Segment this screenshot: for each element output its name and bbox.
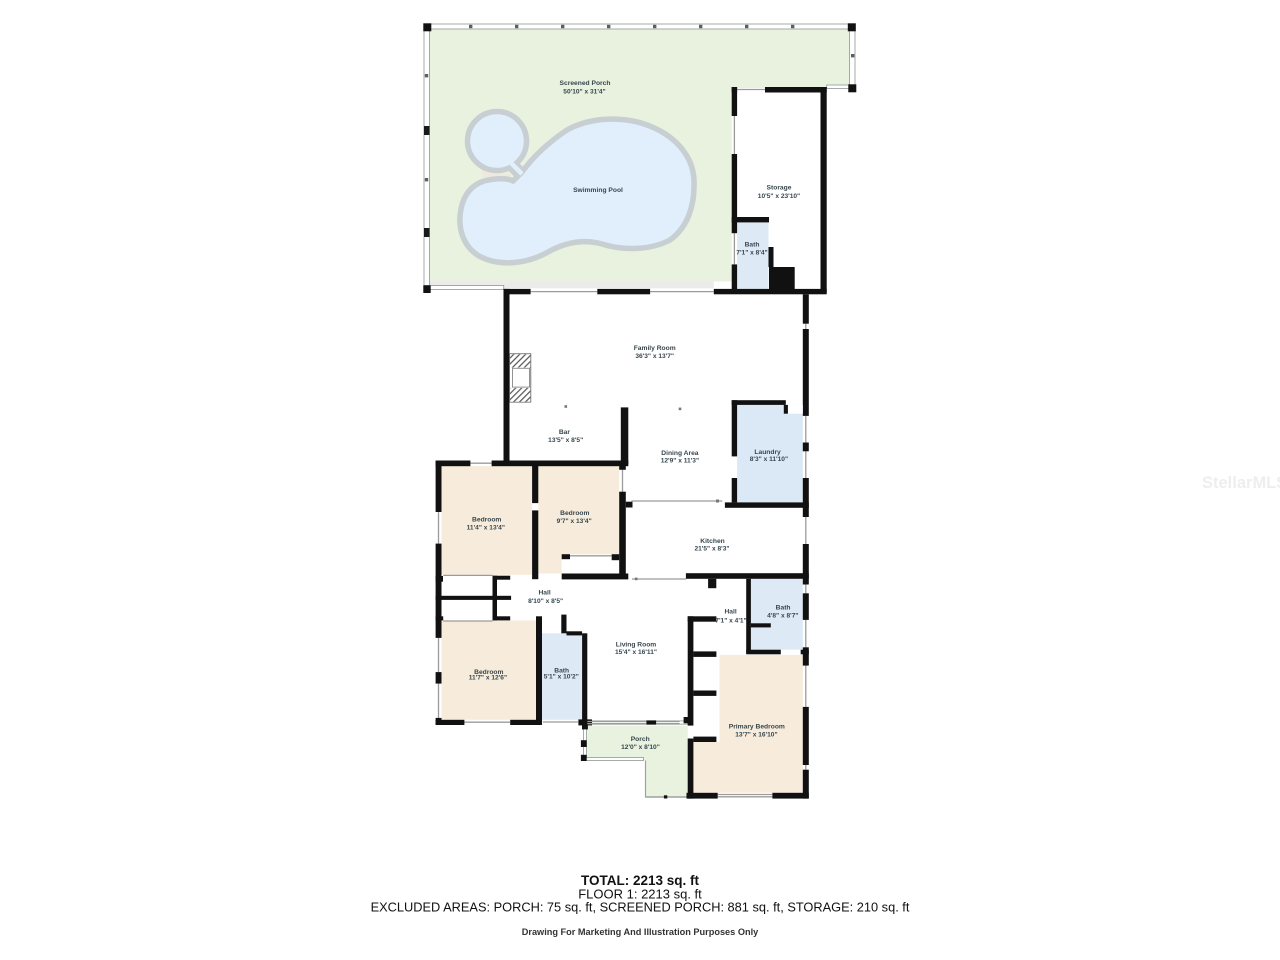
svg-text:EXCLUDED AREAS: PORCH: 75 sq.: EXCLUDED AREAS: PORCH: 75 sq. ft, SCREEN… — [371, 900, 910, 915]
svg-text:StellarMLS: StellarMLS — [1202, 474, 1280, 492]
svg-text:50'10" x 31'4": 50'10" x 31'4" — [563, 89, 605, 96]
svg-text:10'5" x 23'10": 10'5" x 23'10" — [758, 193, 800, 200]
svg-text:Primary Bedroom: Primary Bedroom — [729, 724, 785, 731]
svg-text:Hall: Hall — [724, 609, 736, 616]
svg-text:Living Room: Living Room — [616, 641, 657, 648]
svg-text:8'10" x 8'5": 8'10" x 8'5" — [528, 598, 563, 605]
svg-text:Bath: Bath — [745, 242, 760, 249]
svg-text:11'4" x 13'4": 11'4" x 13'4" — [467, 525, 505, 532]
svg-text:12'0" x 8'10": 12'0" x 8'10" — [621, 744, 660, 751]
svg-text:Drawing For Marketing And Illu: Drawing For Marketing And Illustration P… — [522, 927, 759, 937]
svg-text:12'9" x 11'3": 12'9" x 11'3" — [661, 458, 699, 465]
svg-text:11'7" x 12'6": 11'7" x 12'6" — [469, 675, 507, 682]
svg-text:Hall: Hall — [538, 590, 550, 597]
svg-text:Kitchen: Kitchen — [700, 538, 725, 545]
svg-text:Bath: Bath — [776, 604, 791, 611]
svg-text:Porch: Porch — [631, 736, 650, 743]
svg-text:13'5" x 8'5": 13'5" x 8'5" — [548, 437, 583, 444]
svg-text:8'3" x 11'10": 8'3" x 11'10" — [750, 456, 788, 463]
svg-text:Laundry: Laundry — [754, 449, 781, 456]
svg-text:4'8" x 8'7": 4'8" x 8'7" — [767, 613, 798, 620]
svg-text:Bar: Bar — [559, 429, 571, 436]
svg-text:Swimming Pool: Swimming Pool — [573, 187, 623, 194]
svg-text:Dining Area: Dining Area — [661, 450, 699, 457]
svg-text:5'1" x 10'2": 5'1" x 10'2" — [544, 674, 579, 681]
svg-text:Screened Porch: Screened Porch — [560, 80, 611, 87]
svg-text:Storage: Storage — [767, 185, 792, 192]
svg-text:7'1" x 8'4": 7'1" x 8'4" — [736, 250, 767, 257]
svg-text:Family Room: Family Room — [634, 345, 676, 352]
svg-text:36'3" x 13'7": 36'3" x 13'7" — [635, 353, 674, 360]
svg-text:7'1" x 4'1": 7'1" x 4'1" — [715, 617, 746, 624]
svg-text:21'5" x 8'3": 21'5" x 8'3" — [694, 546, 729, 553]
svg-text:13'7" x 16'10": 13'7" x 16'10" — [735, 732, 777, 739]
svg-text:9'7" x 13'4": 9'7" x 13'4" — [557, 518, 592, 525]
svg-text:Bedroom: Bedroom — [560, 510, 589, 517]
svg-text:15'4" x 16'11": 15'4" x 16'11" — [615, 649, 657, 656]
svg-text:Bedroom: Bedroom — [472, 517, 501, 524]
